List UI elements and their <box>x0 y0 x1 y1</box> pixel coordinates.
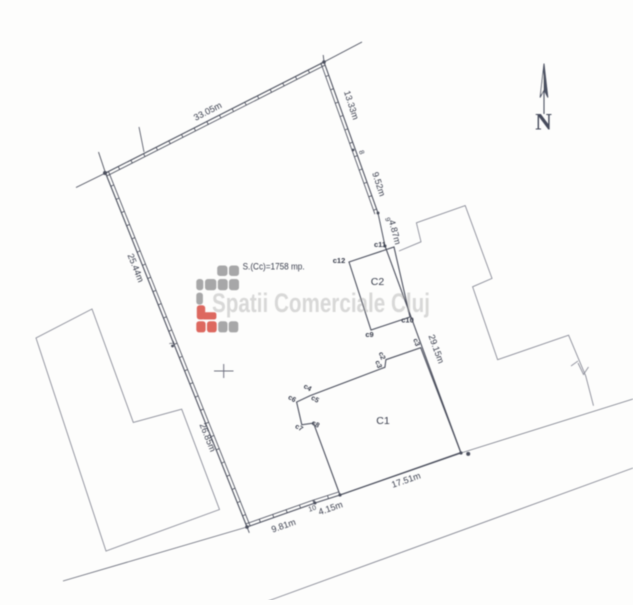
svg-text:c9: c9 <box>365 330 373 339</box>
svg-text:Spatii Comerciale Cluj: Spatii Comerciale Cluj <box>212 288 430 318</box>
svg-text:c12: c12 <box>333 256 346 265</box>
svg-text:S.(Cc)=1758 mp.: S.(Cc)=1758 mp. <box>243 262 305 272</box>
svg-text:N: N <box>535 110 552 135</box>
svg-text:C1: C1 <box>376 415 390 427</box>
svg-text:c11: c11 <box>374 240 386 249</box>
svg-text:C2: C2 <box>371 276 385 288</box>
